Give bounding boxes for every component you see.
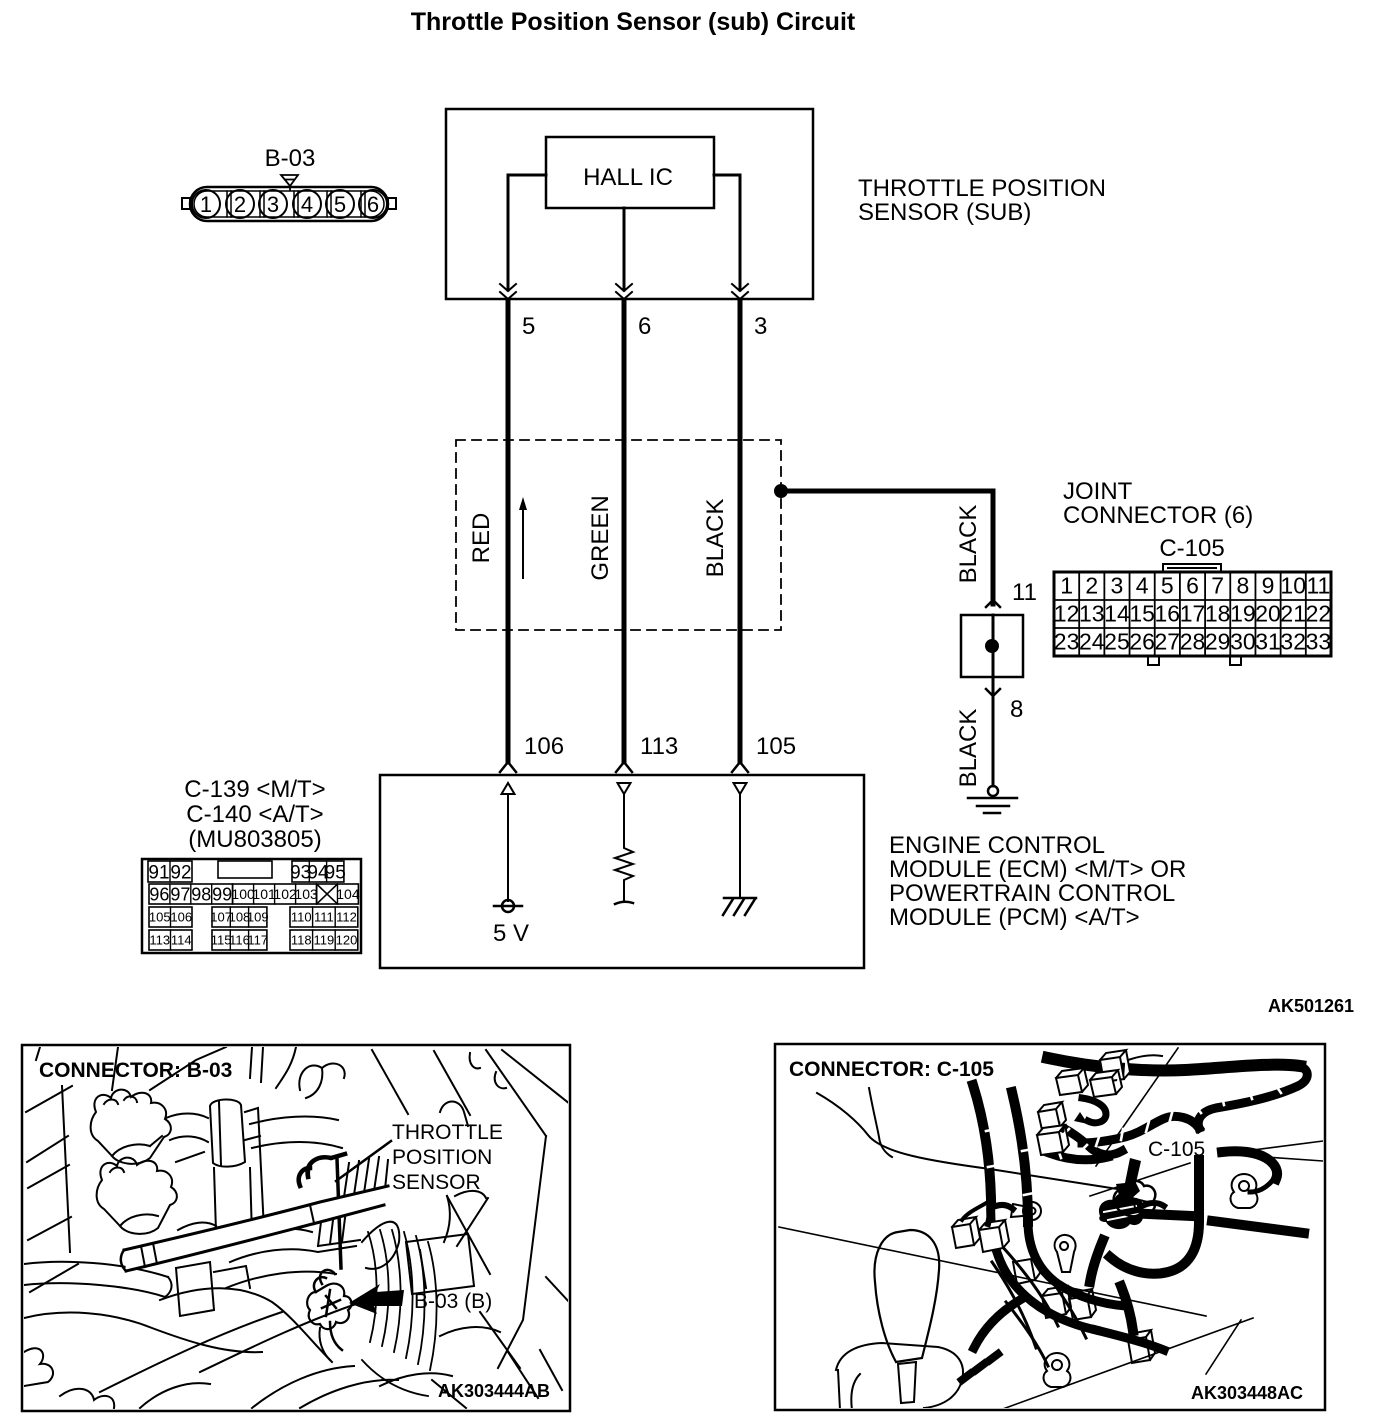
svg-text:MODULE (ECM) <M/T> OR: MODULE (ECM) <M/T> OR [889, 856, 1186, 883]
svg-text:10: 10 [1280, 573, 1306, 599]
svg-text:7: 7 [1211, 573, 1224, 599]
svg-text:14: 14 [1104, 601, 1130, 627]
svg-text:4: 4 [1136, 573, 1149, 599]
svg-text:22: 22 [1306, 601, 1332, 627]
svg-text:C-139 <M/T>: C-139 <M/T> [184, 776, 325, 803]
svg-text:26: 26 [1129, 629, 1155, 655]
svg-text:AK303448AC: AK303448AC [1191, 1383, 1303, 1403]
svg-text:5: 5 [1161, 573, 1174, 599]
svg-text:2: 2 [1085, 573, 1098, 599]
svg-text:HALL IC: HALL IC [583, 164, 673, 191]
svg-text:25: 25 [1104, 629, 1130, 655]
svg-text:120: 120 [336, 933, 358, 948]
svg-text:12: 12 [1054, 601, 1080, 627]
svg-text:95: 95 [325, 862, 346, 883]
svg-text:30: 30 [1230, 629, 1256, 655]
svg-text:97: 97 [170, 884, 190, 904]
svg-text:92: 92 [170, 862, 191, 883]
svg-text:SENSOR (SUB): SENSOR (SUB) [858, 199, 1031, 226]
svg-text:THROTTLE POSITION: THROTTLE POSITION [858, 175, 1106, 202]
svg-text:6: 6 [367, 192, 379, 217]
svg-text:AK303444AB: AK303444AB [438, 1381, 550, 1401]
svg-text:11: 11 [1306, 573, 1330, 599]
svg-text:11: 11 [1012, 579, 1037, 606]
svg-text:1: 1 [200, 192, 212, 217]
svg-text:5: 5 [522, 313, 535, 340]
svg-text:28: 28 [1180, 629, 1206, 655]
svg-text:THROTTLE: THROTTLE [392, 1121, 503, 1144]
svg-text:3: 3 [267, 192, 279, 217]
svg-text:Throttle Position Sensor (sub): Throttle Position Sensor (sub) Circuit [411, 8, 856, 36]
svg-text:15: 15 [1129, 601, 1155, 627]
svg-text:104: 104 [336, 886, 360, 902]
svg-text:B-03: B-03 [265, 145, 316, 172]
svg-text:9: 9 [1262, 573, 1275, 599]
svg-text:110: 110 [291, 910, 312, 925]
svg-text:105: 105 [149, 910, 171, 925]
svg-text:8: 8 [1236, 573, 1249, 599]
svg-text:CONNECTOR: C-105: CONNECTOR: C-105 [789, 1058, 994, 1081]
svg-text:106: 106 [170, 910, 192, 925]
svg-text:117: 117 [247, 933, 268, 948]
svg-text:JOINT: JOINT [1063, 478, 1133, 505]
svg-text:119: 119 [314, 933, 335, 948]
svg-text:32: 32 [1280, 629, 1306, 655]
svg-text:109: 109 [247, 910, 269, 925]
svg-text:24: 24 [1079, 629, 1105, 655]
svg-text:19: 19 [1230, 601, 1256, 627]
svg-text:BLACK: BLACK [702, 499, 729, 578]
svg-text:20: 20 [1255, 601, 1281, 627]
svg-text:17: 17 [1180, 601, 1206, 627]
svg-text:3: 3 [1111, 573, 1124, 599]
svg-text:113: 113 [149, 933, 170, 948]
svg-text:111: 111 [314, 910, 334, 925]
svg-text:BLACK: BLACK [955, 505, 982, 584]
svg-text:33: 33 [1306, 629, 1332, 655]
svg-text:3: 3 [754, 313, 767, 340]
svg-text:C-105: C-105 [1159, 535, 1224, 562]
svg-text:105: 105 [756, 733, 796, 760]
svg-text:96: 96 [149, 884, 169, 904]
svg-text:POWERTRAIN CONTROL: POWERTRAIN CONTROL [889, 880, 1175, 907]
svg-text:8: 8 [1010, 696, 1023, 723]
svg-text:5: 5 [334, 192, 346, 217]
svg-text:114: 114 [171, 933, 192, 948]
svg-text:23: 23 [1054, 629, 1080, 655]
svg-text:2: 2 [234, 192, 246, 217]
svg-text:(MU803805): (MU803805) [188, 826, 321, 853]
svg-text:27: 27 [1155, 629, 1181, 655]
svg-text:112: 112 [336, 910, 357, 925]
svg-text:BLACK: BLACK [955, 709, 982, 788]
svg-text:6: 6 [638, 313, 651, 340]
svg-text:31: 31 [1255, 629, 1281, 655]
svg-text:6: 6 [1186, 573, 1199, 599]
svg-text:18: 18 [1205, 601, 1231, 627]
svg-text:98: 98 [191, 884, 211, 904]
svg-text:29: 29 [1205, 629, 1231, 655]
svg-text:C-105: C-105 [1148, 1138, 1205, 1161]
svg-text:91: 91 [148, 862, 169, 883]
svg-text:113: 113 [640, 733, 678, 760]
svg-text:5 V: 5 V [493, 920, 529, 947]
svg-text:MODULE (PCM) <A/T>: MODULE (PCM) <A/T> [889, 904, 1140, 931]
svg-text:SENSOR: SENSOR [392, 1171, 481, 1194]
svg-text:CONNECTOR (6): CONNECTOR (6) [1063, 502, 1253, 529]
svg-text:C-140 <A/T>: C-140 <A/T> [186, 801, 323, 828]
svg-text:13: 13 [1079, 601, 1105, 627]
svg-text:AK501261: AK501261 [1268, 996, 1354, 1016]
svg-text:RED: RED [468, 513, 495, 564]
svg-text:ENGINE CONTROL: ENGINE CONTROL [889, 832, 1105, 859]
svg-text:118: 118 [291, 933, 312, 948]
svg-text:16: 16 [1155, 601, 1181, 627]
svg-text:4: 4 [301, 192, 313, 217]
svg-text:1: 1 [1060, 573, 1073, 599]
svg-text:POSITION: POSITION [392, 1146, 492, 1169]
svg-text:CONNECTOR: B-03: CONNECTOR: B-03 [39, 1059, 232, 1082]
svg-text:103: 103 [294, 886, 318, 902]
svg-text:B-03 (B): B-03 (B) [414, 1290, 492, 1313]
svg-text:99: 99 [212, 884, 232, 904]
svg-text:GREEN: GREEN [587, 495, 614, 580]
svg-text:106: 106 [524, 733, 564, 760]
svg-text:21: 21 [1280, 601, 1306, 627]
